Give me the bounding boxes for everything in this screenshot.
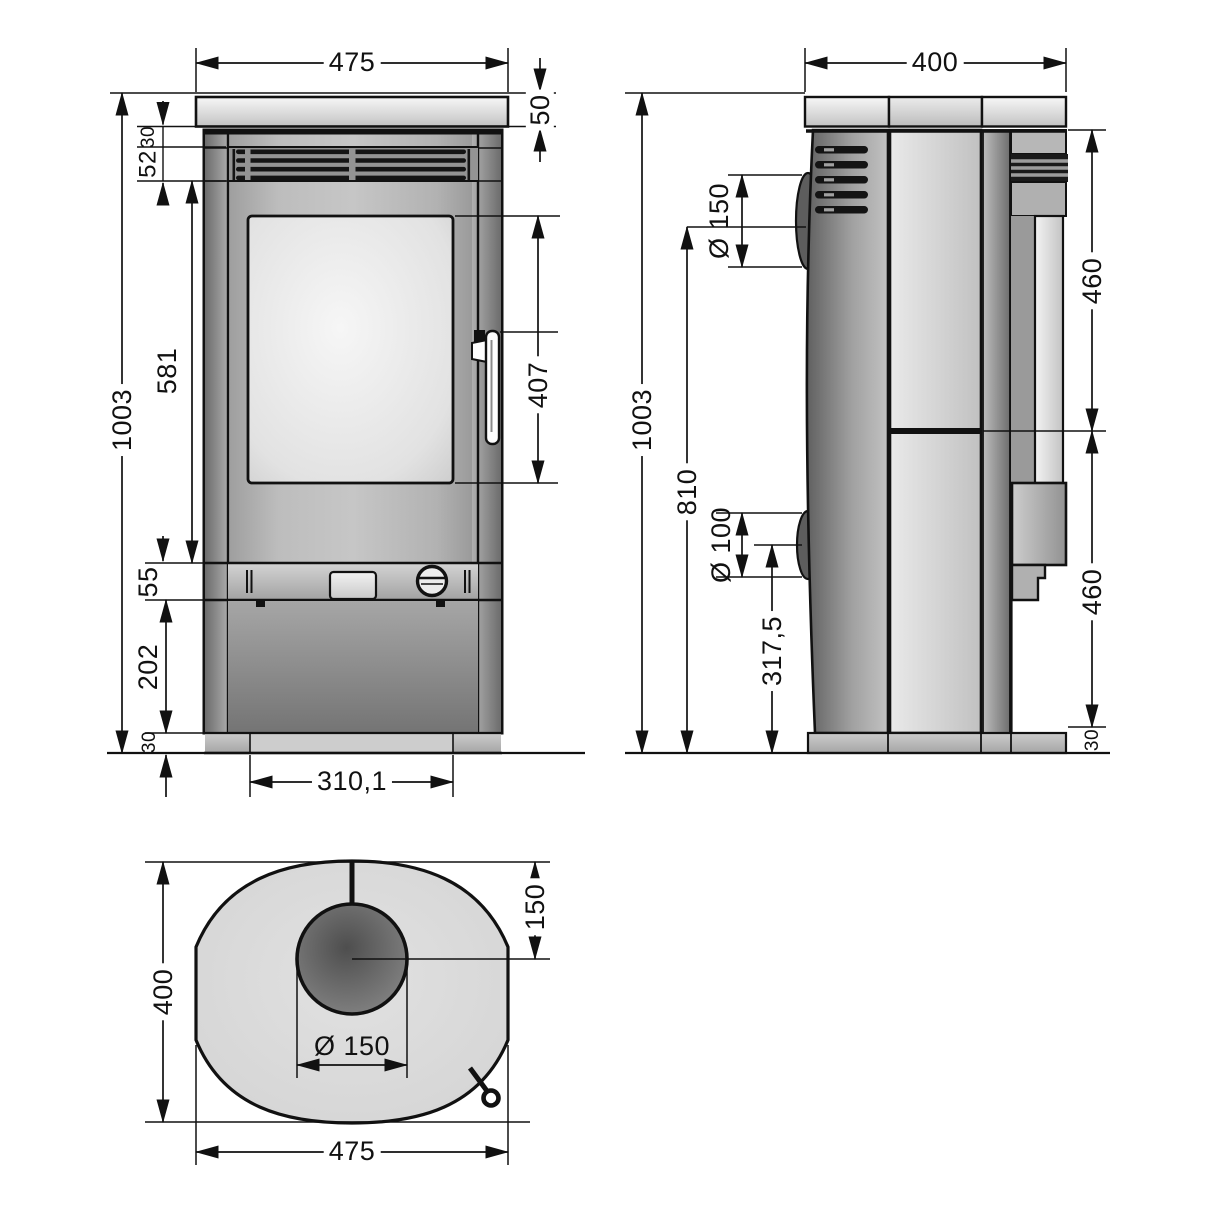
side-outletdia-label: Ø 100 bbox=[707, 507, 735, 583]
drawing-graphics bbox=[0, 0, 1214, 1214]
side-depth-label: 400 bbox=[907, 48, 964, 76]
top-depth-label: 400 bbox=[149, 964, 177, 1021]
front-glass-door bbox=[248, 216, 453, 483]
side-height-label: 1003 bbox=[628, 384, 656, 456]
ash-drawer-handle bbox=[330, 572, 376, 599]
side-plinth30-label: 30 bbox=[1083, 729, 1103, 751]
side-door-glass-edge bbox=[1035, 216, 1063, 483]
side-upper460-label: 460 bbox=[1078, 253, 1106, 310]
front-view-drawing bbox=[196, 97, 508, 753]
side-flueheight-label: 810 bbox=[673, 464, 701, 521]
front-gap30-label: 30 bbox=[139, 126, 159, 148]
top-view-drawing bbox=[196, 861, 508, 1123]
front-strip55-label: 55 bbox=[134, 566, 162, 597]
front-width-label: 475 bbox=[324, 48, 381, 76]
front-upper581-label: 581 bbox=[153, 348, 181, 395]
top-flueoffset-label: 150 bbox=[521, 879, 549, 936]
front-top-plate bbox=[196, 97, 508, 127]
air-control-knob bbox=[418, 567, 447, 596]
front-height-label: 1003 bbox=[108, 384, 136, 456]
side-outletheight-label: 317,5 bbox=[758, 611, 786, 691]
side-fluedia-label: Ø 150 bbox=[705, 183, 733, 259]
front-plinth30-label: 30 bbox=[140, 731, 160, 753]
top-fluedia-label: Ø 150 bbox=[314, 1032, 390, 1060]
front-plinthwidth-label: 310,1 bbox=[312, 767, 392, 795]
side-lower460-label: 460 bbox=[1078, 564, 1106, 621]
front-base202-label: 202 bbox=[134, 644, 162, 691]
side-top-plate bbox=[805, 97, 1066, 127]
front-plate-label: 50 bbox=[526, 89, 554, 130]
front-vent52-label: 52 bbox=[135, 150, 160, 178]
dimension-drawing: 475 50 30 52 1003 581 407 55 202 30 310,… bbox=[0, 0, 1214, 1214]
top-width-label: 475 bbox=[324, 1137, 381, 1165]
side-view-drawing bbox=[796, 97, 1068, 753]
front-glass407-label: 407 bbox=[524, 357, 552, 414]
